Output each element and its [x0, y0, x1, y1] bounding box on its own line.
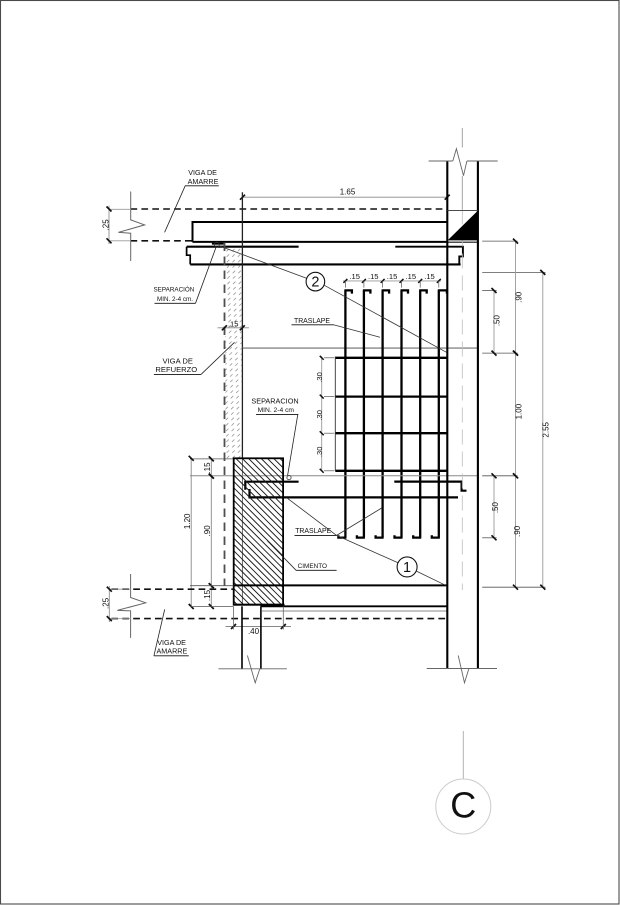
svg-text:.90: .90: [203, 525, 212, 537]
svg-text:.50: .50: [492, 314, 501, 326]
svg-text:.15: .15: [203, 589, 212, 601]
svg-text:VIGA DE: VIGA DE: [163, 356, 193, 365]
svg-text:AMARRE: AMARRE: [157, 647, 188, 656]
svg-text:TRASLAPE: TRASLAPE: [294, 318, 330, 325]
svg-text:.40: .40: [248, 627, 260, 636]
svg-text:.30: .30: [315, 410, 324, 421]
svg-text:2: 2: [311, 275, 319, 291]
svg-text:C: C: [450, 784, 476, 825]
svg-text:.25: .25: [101, 597, 110, 609]
svg-text:.25: .25: [101, 219, 110, 231]
svg-text:.15: .15: [424, 272, 435, 281]
svg-text:.15: .15: [387, 272, 398, 281]
svg-text:1.00: 1.00: [514, 403, 523, 419]
svg-text:SEPARACION: SEPARACION: [251, 396, 298, 405]
svg-text:MIN. 2-4 cm: MIN. 2-4 cm: [258, 407, 295, 414]
svg-text:.15: .15: [349, 272, 360, 281]
svg-text:TRASLAPE: TRASLAPE: [295, 528, 331, 535]
svg-text:.15: .15: [368, 272, 379, 281]
svg-text:.90: .90: [513, 525, 522, 537]
svg-text:AMARRE: AMARRE: [188, 177, 219, 186]
svg-text:.30: .30: [315, 372, 324, 383]
svg-text:.50: .50: [491, 501, 500, 513]
svg-text:.15: .15: [228, 319, 239, 328]
svg-text:1.65: 1.65: [340, 188, 356, 197]
svg-text:SEPARACIÓN: SEPARACIÓN: [153, 285, 194, 294]
svg-text:MIN. 2-4 cm.: MIN. 2-4 cm.: [157, 296, 193, 303]
svg-text:.30: .30: [315, 447, 324, 458]
svg-text:CIMENTO: CIMENTO: [298, 563, 327, 570]
svg-text:2.55: 2.55: [542, 421, 551, 437]
svg-text:1.20: 1.20: [183, 513, 192, 529]
svg-text:1: 1: [403, 560, 411, 576]
svg-text:REFUERZO: REFUERZO: [155, 365, 197, 374]
svg-text:.15: .15: [406, 272, 417, 281]
svg-text:.90: .90: [514, 291, 523, 303]
svg-text:.15: .15: [203, 462, 212, 474]
